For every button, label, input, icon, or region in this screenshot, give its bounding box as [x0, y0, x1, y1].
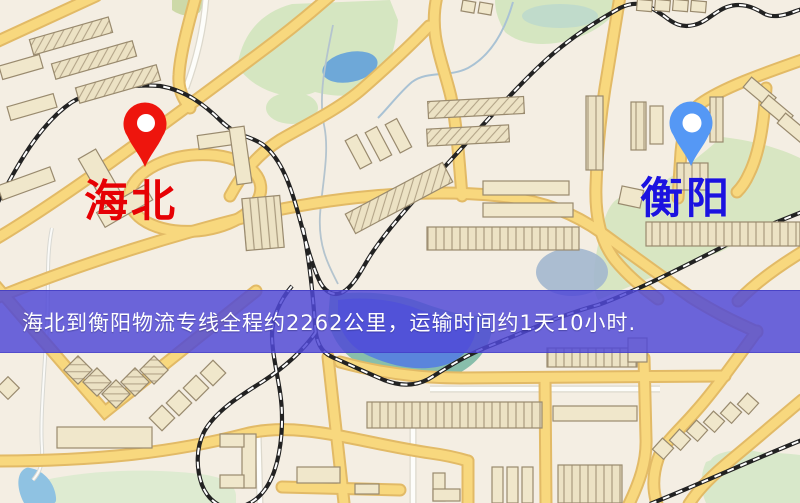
origin-label: 海北	[84, 180, 178, 224]
map-graphics	[0, 0, 800, 503]
route-info-banner: 海北到衡阳物流专线全程约2262公里，运输时间约1天10小时.	[0, 290, 800, 353]
map-canvas[interactable]: 海北 衡阳 海北到衡阳物流专线全程约2262公里，运输时间约1天10小时.	[0, 0, 800, 503]
route-info-text: 海北到衡阳物流专线全程约2262公里，运输时间约1天10小时.	[22, 307, 636, 337]
destination-label: 衡阳	[640, 178, 732, 221]
